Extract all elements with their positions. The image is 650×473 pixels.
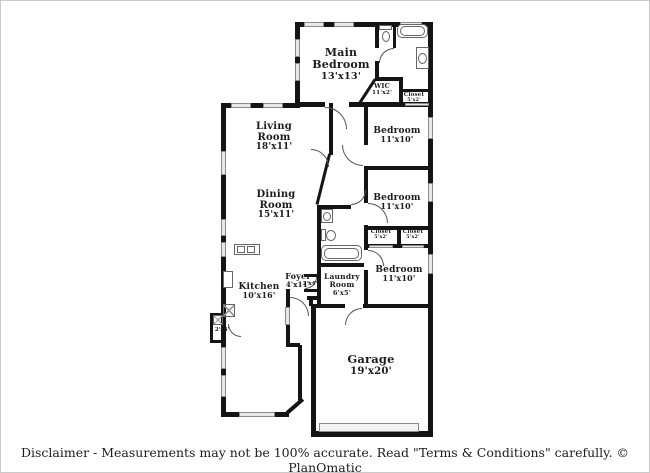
floor-plan: Main Bedroom 13'x13' WIC 11'x2' Closet 5… <box>0 0 650 473</box>
toilet-icon <box>379 25 392 30</box>
window <box>221 219 226 236</box>
window <box>334 22 354 27</box>
window <box>428 117 433 139</box>
kitchen-sink-icon <box>237 246 245 253</box>
window <box>239 412 275 417</box>
window <box>221 242 226 257</box>
window <box>304 22 324 27</box>
door-arc <box>379 48 394 63</box>
room-dims: 10'x16' <box>229 292 289 301</box>
disclaimer-text: Disclaimer - Measurements may not be 100… <box>1 445 649 473</box>
appliance-icon <box>223 304 235 317</box>
room-label-bedroom-1: Bedroom 11'x10' <box>367 126 427 145</box>
window <box>231 103 251 108</box>
sink-icon <box>323 212 331 221</box>
room-name: Laundry Room <box>319 273 365 290</box>
kitchen-sink-icon <box>247 246 255 253</box>
window <box>221 347 226 369</box>
door-arc <box>311 149 329 167</box>
wall <box>363 304 433 308</box>
window <box>295 39 300 57</box>
room-label-closet-left: Closet 5'x2' <box>367 229 395 241</box>
room-dims: 5'x2' <box>367 235 395 240</box>
wall <box>295 102 325 107</box>
room-dims: 11'x2' <box>364 90 400 96</box>
room-dims: 11'x10' <box>369 275 429 284</box>
door-arc <box>342 145 363 166</box>
room-label-living-room: Living Room 18'x11' <box>248 121 300 153</box>
room-name: Main Bedroom <box>306 47 376 72</box>
room-label-bedroom-3: Bedroom 11'x10' <box>369 265 429 284</box>
room-label-dining-room: Dining Room 15'x11' <box>250 189 302 221</box>
room-name: Living Room <box>248 121 300 143</box>
pantry-shelf-icon <box>213 315 223 325</box>
window <box>221 151 226 175</box>
door-arc <box>345 308 362 325</box>
room-label-bedroom-2: Bedroom 11'x10' <box>367 193 427 212</box>
closet-door <box>369 245 393 248</box>
sink-icon <box>418 53 427 64</box>
window <box>428 183 433 202</box>
room-dims: 11'x10' <box>367 136 427 145</box>
dim-label-foyer-closet: 2'x4' <box>300 282 320 288</box>
garage-door <box>319 423 419 432</box>
room-dims: 15'x11' <box>250 211 302 221</box>
room-label-garage: Garage 19'x20' <box>336 353 406 377</box>
door-arc <box>325 107 347 129</box>
room-dims: 6'x5' <box>319 290 365 297</box>
room-dims: 19'x20' <box>336 366 406 377</box>
room-name: WIC <box>364 83 400 90</box>
room-label-main-bedroom: Main Bedroom 13'x13' <box>306 47 376 82</box>
room-label-closet-top: Closet 5'x2' <box>399 92 429 104</box>
wall <box>364 166 433 170</box>
window <box>263 103 283 108</box>
room-dims: 13'x13' <box>306 72 376 83</box>
window <box>221 375 226 397</box>
room-dims: 18'x11' <box>248 143 300 153</box>
dim-label-pantry: 2'x3' <box>212 328 232 334</box>
room-name: Dining Room <box>250 189 302 211</box>
wall <box>311 304 316 437</box>
room-label-laundry-room: Laundry Room 6'x5' <box>319 273 365 297</box>
room-dims: 5'x2' <box>399 235 427 240</box>
room-label-wic: WIC 11'x2' <box>364 83 400 97</box>
door-arc <box>368 250 384 266</box>
wall <box>298 345 302 401</box>
room-name: Garage <box>336 353 406 366</box>
room-dims: 5'x2' <box>399 98 429 103</box>
closet-door <box>402 245 424 248</box>
wall <box>304 289 317 292</box>
bathtub-icon <box>324 248 359 259</box>
room-label-closet-right: Closet 5'x2' <box>399 229 427 241</box>
wall <box>317 263 364 267</box>
window <box>295 63 300 81</box>
bathtub-icon <box>400 26 425 36</box>
wall <box>393 22 396 48</box>
wall <box>210 340 223 343</box>
toilet-icon <box>326 230 336 241</box>
room-dims: 11'x10' <box>367 203 427 212</box>
toilet-icon <box>382 31 390 42</box>
